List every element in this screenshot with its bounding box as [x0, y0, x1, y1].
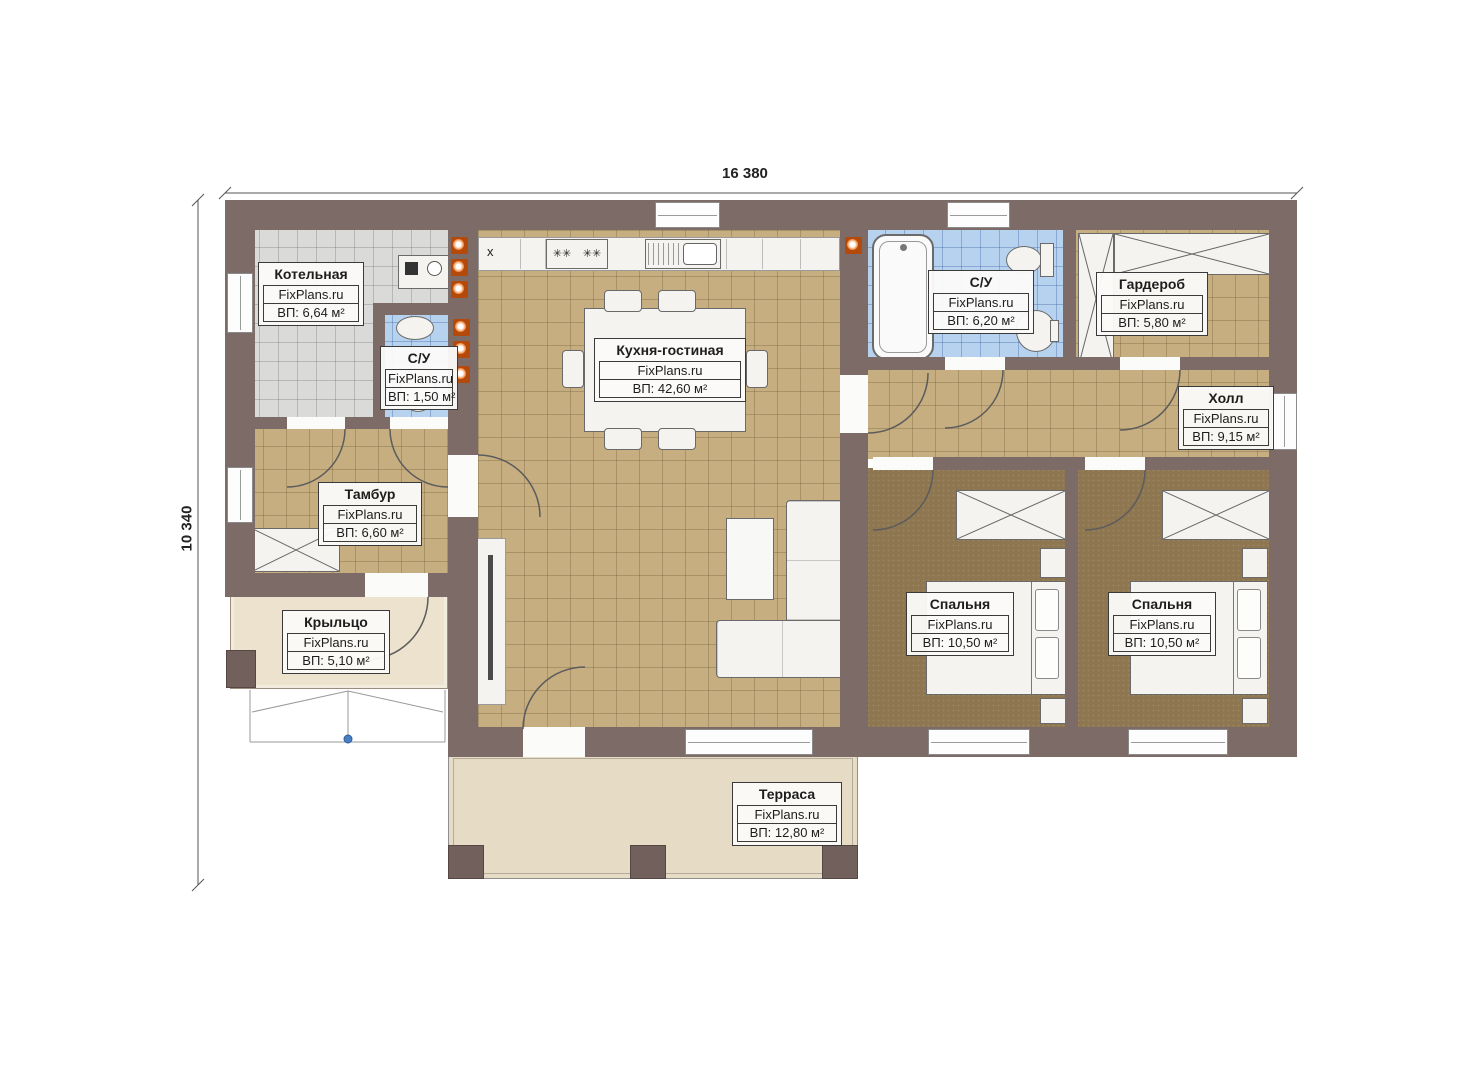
room-area: ВП: 6,64 м² [263, 304, 359, 322]
room-watermark: FixPlans.ru [263, 285, 359, 304]
room-watermark: FixPlans.ru [323, 505, 417, 524]
door-swing-arcs [287, 370, 1180, 729]
room-label-porch: Крыльцо FixPlans.ru ВП: 5,10 м² [282, 610, 390, 674]
room-name: Тамбур [323, 486, 417, 502]
room-name: Холл [1183, 390, 1269, 406]
radiator-icon [451, 281, 468, 298]
floor-plan-canvas: ✳✳✳✳ x [0, 0, 1474, 1080]
room-watermark: FixPlans.ru [911, 615, 1009, 634]
room-label-terrace: Терраса FixPlans.ru ВП: 12,80 м² [732, 782, 842, 846]
room-watermark: FixPlans.ru [287, 633, 385, 652]
room-area: ВП: 6,20 м² [933, 312, 1029, 330]
room-watermark: FixPlans.ru [1113, 615, 1211, 634]
room-area: ВП: 42,60 м² [599, 380, 741, 398]
room-watermark: FixPlans.ru [599, 361, 741, 380]
radiator-icon [453, 319, 470, 336]
room-label-hall: Холл FixPlans.ru ВП: 9,15 м² [1178, 386, 1274, 450]
radiator-icon [451, 237, 468, 254]
room-label-bathroom: С/У FixPlans.ru ВП: 6,20 м² [928, 270, 1034, 334]
room-label-wc-small: С/У FixPlans.ru ВП: 1,50 м² [380, 346, 458, 410]
room-area: ВП: 5,10 м² [287, 652, 385, 670]
room-area: ВП: 10,50 м² [1113, 634, 1211, 652]
room-watermark: FixPlans.ru [1101, 295, 1203, 314]
survey-marker [344, 735, 352, 743]
room-watermark: FixPlans.ru [1183, 409, 1269, 428]
radiator-icon [451, 259, 468, 276]
room-name: Крыльцо [287, 614, 385, 630]
plan-annotations [0, 0, 1474, 1080]
room-name: Гардероб [1101, 276, 1203, 292]
room-label-wardrobe: Гардероб FixPlans.ru ВП: 5,80 м² [1096, 272, 1208, 336]
room-area: ВП: 12,80 м² [737, 824, 837, 842]
room-label-kitchen-living: Кухня-гостиная FixPlans.ru ВП: 42,60 м² [594, 338, 746, 402]
room-watermark: FixPlans.ru [385, 369, 453, 388]
room-name: С/У [385, 350, 453, 366]
room-area: ВП: 1,50 м² [385, 388, 453, 406]
room-name: Кухня-гостиная [599, 342, 741, 358]
room-label-bedroom1: Спальня FixPlans.ru ВП: 10,50 м² [906, 592, 1014, 656]
room-name: С/У [933, 274, 1029, 290]
room-watermark: FixPlans.ru [933, 293, 1029, 312]
room-area: ВП: 5,80 м² [1101, 314, 1203, 332]
room-name: Спальня [1113, 596, 1211, 612]
room-area: ВП: 9,15 м² [1183, 428, 1269, 446]
room-name: Спальня [911, 596, 1009, 612]
room-name: Котельная [263, 266, 359, 282]
radiator-icon [845, 237, 862, 254]
room-watermark: FixPlans.ru [737, 805, 837, 824]
room-area: ВП: 6,60 м² [323, 524, 417, 542]
porch-steps [250, 690, 445, 742]
room-area: ВП: 10,50 м² [911, 634, 1009, 652]
room-label-bedroom2: Спальня FixPlans.ru ВП: 10,50 м² [1108, 592, 1216, 656]
room-label-vestibule: Тамбур FixPlans.ru ВП: 6,60 м² [318, 482, 422, 546]
room-name: Терраса [737, 786, 837, 802]
room-label-boiler: Котельная FixPlans.ru ВП: 6,64 м² [258, 262, 364, 326]
